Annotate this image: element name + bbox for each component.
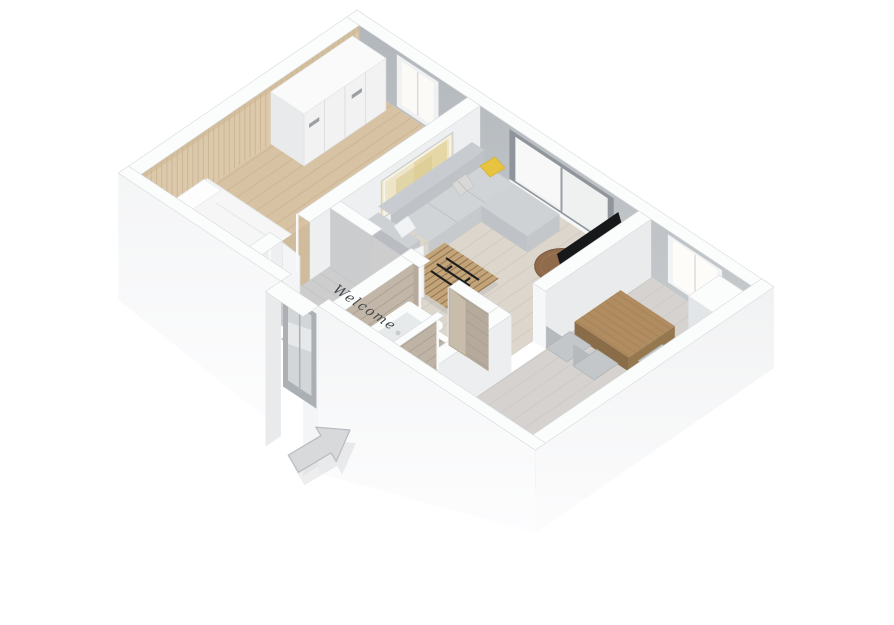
floorplan-canvas: Welcome	[0, 0, 894, 625]
floorplan-3d-view: Welcome	[0, 0, 894, 625]
